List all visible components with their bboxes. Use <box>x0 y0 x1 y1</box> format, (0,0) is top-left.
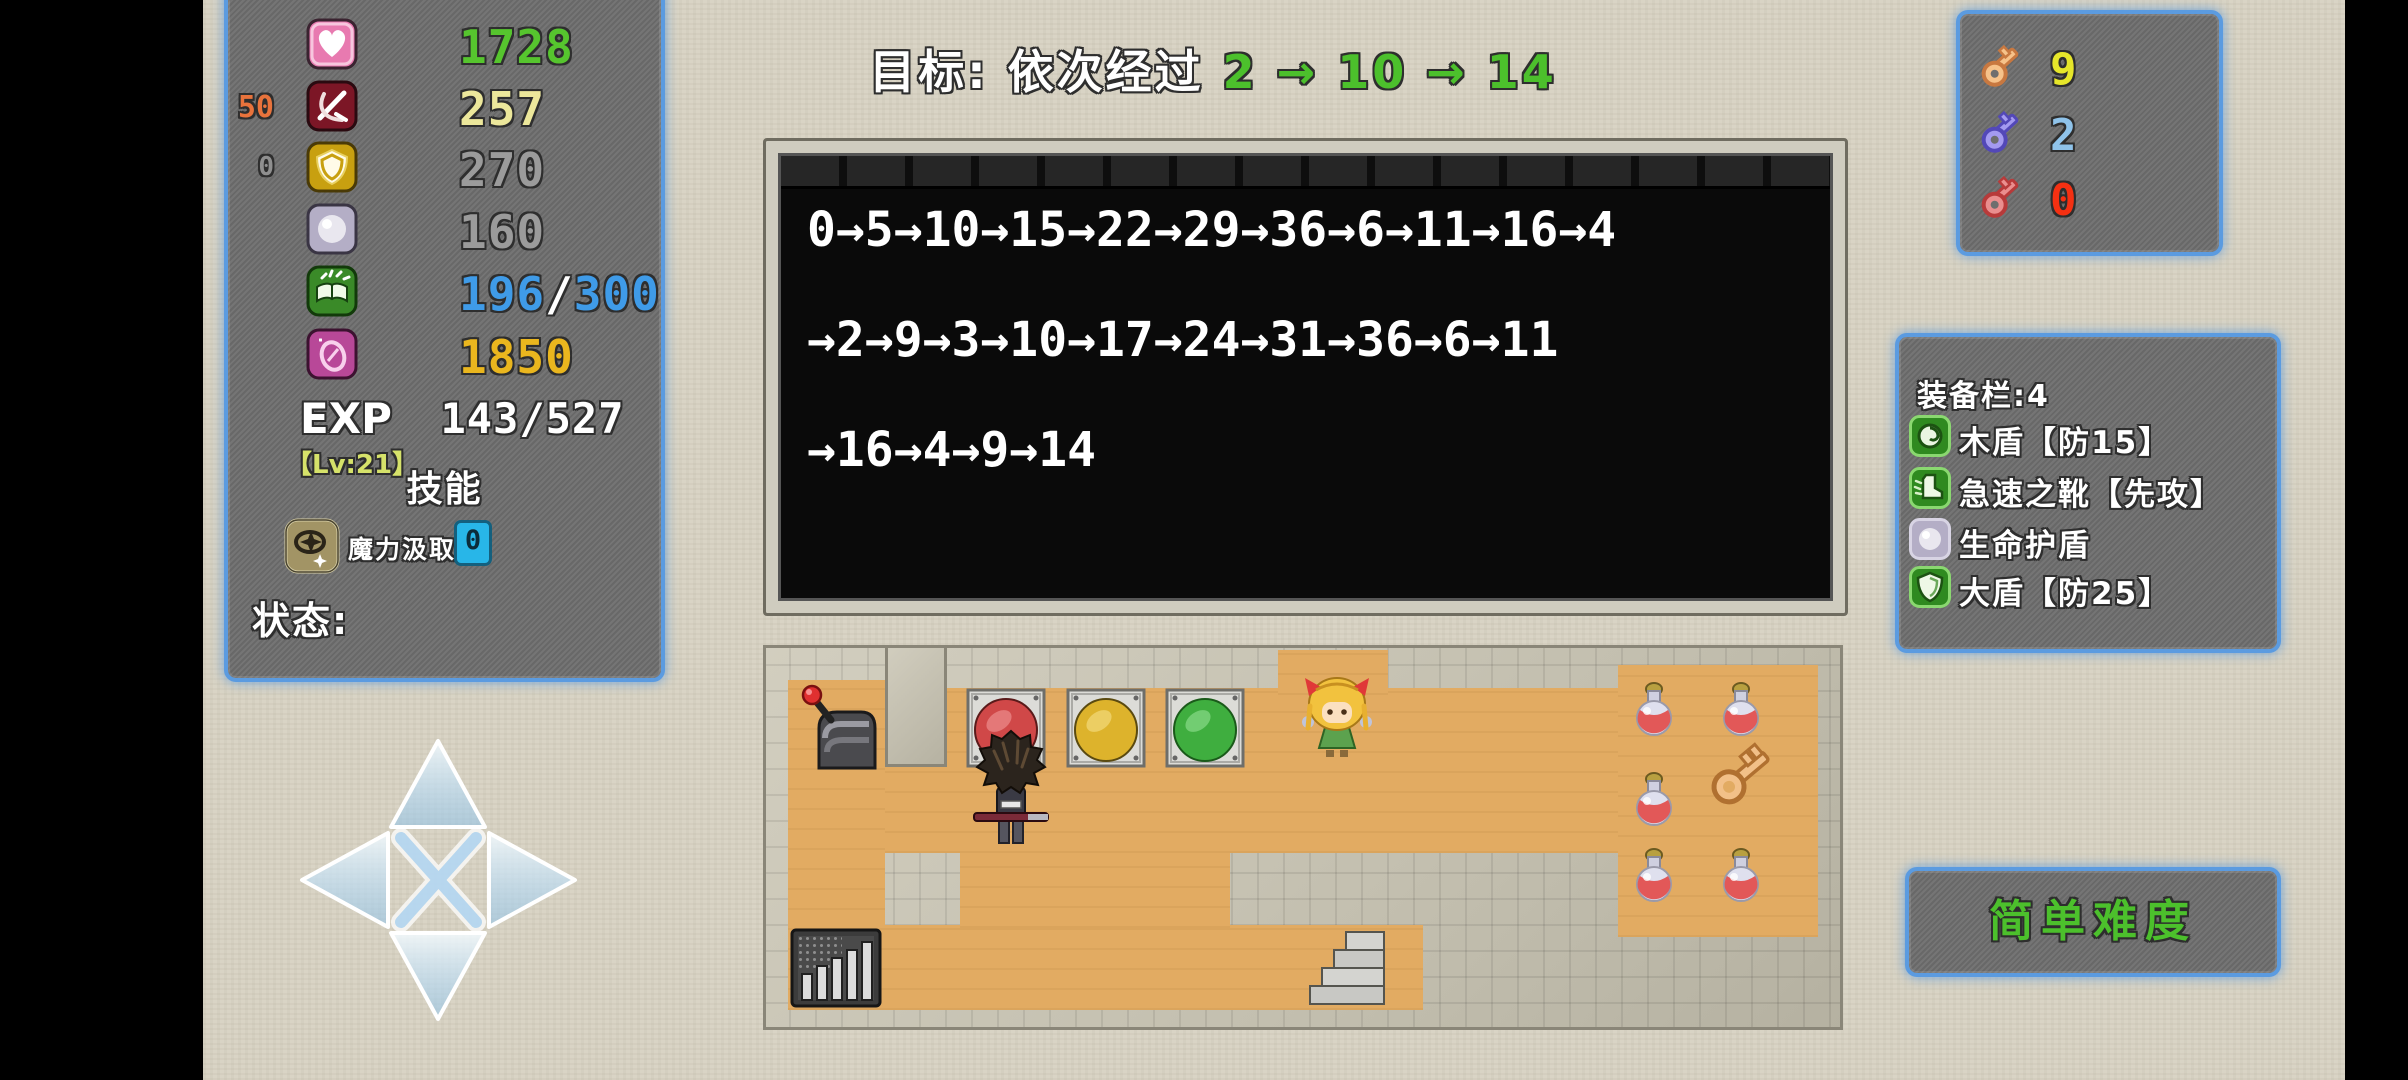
dpad-left-button[interactable] <box>302 833 388 927</box>
gold-key-item[interactable] <box>1700 737 1780 813</box>
yellow-key-icon <box>1972 38 2024 90</box>
gold-icon <box>306 328 358 380</box>
goal-sequence: 2 → 10 → 14 <box>1223 45 1557 99</box>
equipment-item: 急速之靴【先攻】 <box>1959 469 2223 514</box>
mdef-value: 160 <box>459 205 545 259</box>
hp-icon <box>306 18 358 70</box>
speed-boots-icon <box>1909 467 1951 509</box>
console-line: →2→9→3→10→17→24→31→36→6→11 <box>807 312 1558 368</box>
status-label: 状态: <box>252 590 349 645</box>
goal-prefix: 目标: 依次经过 <box>869 45 1222 99</box>
stairs-up[interactable] <box>1296 928 1388 1010</box>
hero-character <box>968 727 1054 853</box>
green-button[interactable] <box>1165 688 1245 768</box>
atk-value: 257 <box>459 82 545 136</box>
exp-row: EXP 143/527 <box>300 394 625 443</box>
console-line: 0→5→10→15→22→29→36→6→11→16→4 <box>807 202 1616 258</box>
dpad-right-button[interactable] <box>489 833 575 927</box>
red-key-icon <box>1972 169 2024 221</box>
equipment-item: 木盾【防15】 <box>1959 417 2171 462</box>
dpad-down-button[interactable] <box>391 933 485 1019</box>
atk-extra-badge: 50 <box>230 90 274 125</box>
exp-label: EXP <box>300 394 392 443</box>
skill-name: 魔力汲取 <box>348 530 456 566</box>
wall-block <box>885 645 947 767</box>
gold-value: 1850 <box>459 330 574 384</box>
floor <box>960 853 1230 928</box>
def-icon <box>306 141 358 193</box>
console-line: →16→4→9→14 <box>807 422 1096 478</box>
equipment-title: 装备栏:4 <box>1917 371 2050 415</box>
skill-count-badge: 0 <box>454 520 492 566</box>
console-panel: 0→5→10→15→22→29→36→6→11→16→4 →2→9→3→10→1… <box>763 138 1848 616</box>
dungeon-map <box>763 645 1843 1030</box>
big-shield-icon <box>1909 566 1951 608</box>
red-potion[interactable] <box>1630 680 1678 738</box>
yellow-button[interactable] <box>1066 688 1146 768</box>
book-icon <box>306 265 358 317</box>
mdef-orb-icon <box>306 203 358 255</box>
skills-heading: 技能 <box>228 460 661 512</box>
book-value: 196/300 <box>459 267 660 321</box>
lever-machine[interactable] <box>797 682 887 774</box>
def-value: 270 <box>459 143 545 197</box>
goal-text: 目标: 依次经过 2 → 10 → 14 <box>613 36 1813 102</box>
mana-drain-skill-icon[interactable] <box>284 518 340 574</box>
stats-panel: 50 0 1728 257 270 160 <box>224 0 665 682</box>
difficulty-label: 简单难度 <box>1989 896 2197 947</box>
wood-shield-icon <box>1909 415 1951 457</box>
def-extra-badge: 0 <box>230 152 274 182</box>
blue-key-count: 2 <box>2050 110 2077 161</box>
yellow-key-count: 9 <box>2050 44 2077 95</box>
red-potion[interactable] <box>1630 770 1678 828</box>
equipment-item: 大盾【防25】 <box>1959 568 2171 613</box>
hp-value: 1728 <box>459 20 574 74</box>
life-shield-icon <box>1909 518 1951 560</box>
equipment-item: 生命护盾 <box>1959 520 2091 565</box>
dpad-up-button[interactable] <box>391 741 485 827</box>
dpad <box>286 735 591 1025</box>
game-stage: 目标: 依次经过 2 → 10 → 14 50 0 1728 257 270 <box>203 0 2345 1080</box>
exp-value: 143/527 <box>440 394 624 443</box>
blue-key-icon <box>1972 104 2024 156</box>
difficulty-button[interactable]: 简单难度 <box>1905 867 2281 977</box>
red-potion[interactable] <box>1630 846 1678 904</box>
console-screen: 0→5→10→15→22→29→36→6→11→16→4 →2→9→3→10→1… <box>781 156 1830 598</box>
red-potion[interactable] <box>1717 680 1765 738</box>
gate-grate[interactable] <box>790 928 882 1010</box>
keys-panel: 9 2 0 <box>1956 10 2223 256</box>
atk-icon <box>306 80 358 132</box>
red-potion[interactable] <box>1717 846 1765 904</box>
equipment-panel: 装备栏:4 木盾【防15】 急速之靴【先攻】 生命护盾 大盾【防25】 <box>1895 333 2281 653</box>
red-key-count: 0 <box>2050 175 2077 226</box>
npc-fairy[interactable] <box>1296 672 1378 764</box>
